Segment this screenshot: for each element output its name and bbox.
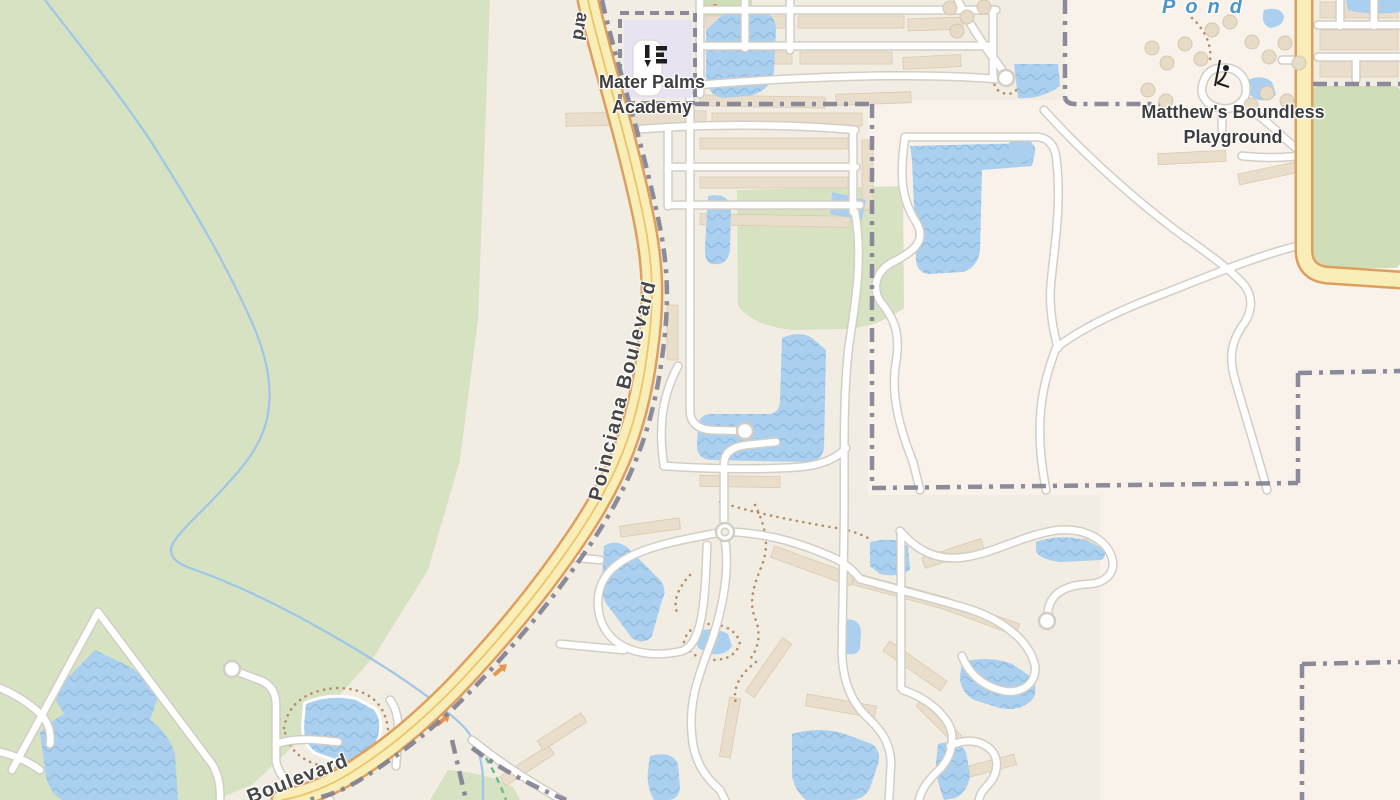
building-row (800, 52, 892, 64)
tree-icon (1141, 83, 1155, 97)
tree-icon (1205, 23, 1219, 37)
building-row (700, 177, 848, 188)
tree-icon (1223, 15, 1237, 29)
tree-icon (1245, 35, 1259, 49)
tree-icon (1160, 56, 1174, 70)
tree-icon (1244, 98, 1258, 112)
building-row (1320, 30, 1398, 50)
playfield-northeast (1313, 86, 1400, 268)
tree-icon (1159, 94, 1173, 108)
tree-icon (960, 10, 974, 24)
building-row (798, 16, 904, 28)
cul-de-sac (1039, 613, 1055, 629)
cul-de-sac (224, 661, 240, 677)
tree-icon (977, 0, 991, 14)
tree-icon (1260, 86, 1274, 100)
cul-de-sac (737, 423, 753, 439)
cul-de-sac (998, 70, 1014, 86)
map-canvas[interactable] (0, 0, 1400, 800)
building-row (903, 54, 962, 69)
tree-icon (950, 24, 964, 38)
map-viewport[interactable]: Mater Palms Academy Matthew's Boundless … (0, 0, 1400, 800)
tree-icon (943, 1, 957, 15)
tree-icon (1145, 41, 1159, 55)
tree-icon (1292, 56, 1306, 70)
tree-icon (1278, 36, 1292, 50)
tree-icon (1178, 37, 1192, 51)
building-row (700, 475, 780, 487)
tree-icon (1262, 50, 1276, 64)
building-row (700, 138, 848, 149)
tree-icon (1280, 94, 1294, 108)
tree-icon (1194, 52, 1208, 66)
